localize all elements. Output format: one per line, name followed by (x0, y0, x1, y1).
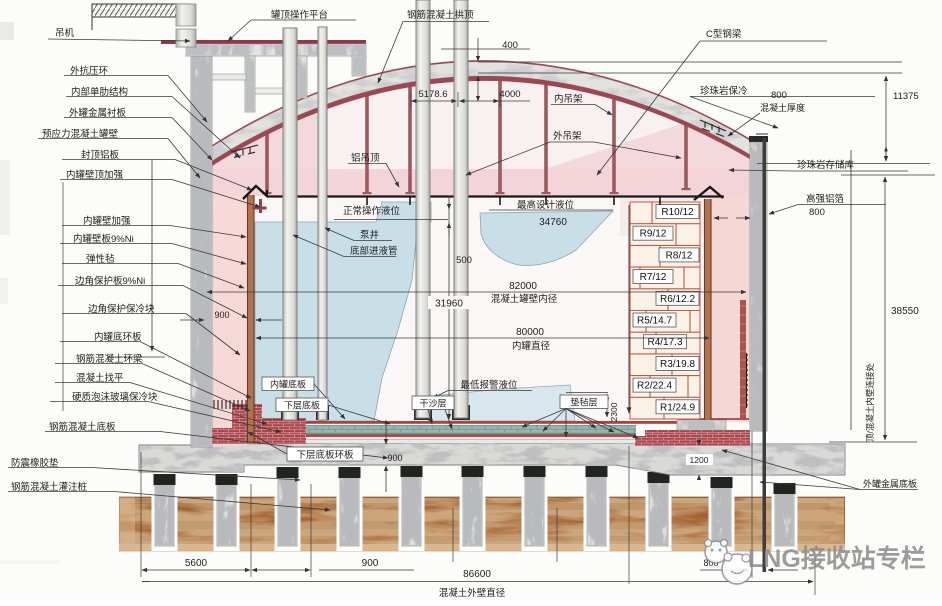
svg-text:82000: 82000 (509, 281, 537, 292)
svg-text:500: 500 (456, 255, 472, 266)
svg-text:R7/12: R7/12 (640, 272, 667, 283)
svg-text:干沙层: 干沙层 (419, 399, 446, 409)
svg-text:内吊架: 内吊架 (554, 93, 583, 105)
svg-text:内罐直径: 内罐直径 (512, 340, 551, 352)
svg-text:C型钢梁: C型钢梁 (706, 28, 742, 40)
svg-text:混凝土厚度: 混凝土厚度 (760, 102, 805, 113)
svg-text:1200: 1200 (690, 455, 709, 465)
svg-text:R6/12.2: R6/12.2 (660, 294, 695, 305)
svg-text:底部进液管: 底部进液管 (350, 245, 398, 257)
svg-text:R5/14.7: R5/14.7 (637, 316, 672, 327)
svg-text:4000: 4000 (499, 89, 520, 100)
svg-text:800: 800 (771, 90, 787, 101)
svg-text:900: 900 (387, 453, 402, 463)
svg-text:垫毡层: 垫毡层 (570, 397, 597, 408)
svg-text:珍珠岩存储库: 珍珠岩存储库 (797, 159, 855, 171)
svg-text:吊机: 吊机 (55, 27, 75, 39)
svg-text:31960: 31960 (435, 299, 463, 310)
svg-text:5600: 5600 (185, 558, 208, 569)
svg-text:内罐底板: 内罐底板 (270, 379, 306, 390)
svg-text:R1/24.9: R1/24.9 (660, 402, 695, 413)
svg-text:钢筋混凝土拱顶: 钢筋混凝土拱顶 (407, 9, 474, 21)
svg-text:LNG接收站专栏: LNG接收站专栏 (748, 544, 926, 573)
svg-text:混凝土外壁直径: 混凝土外壁直径 (439, 587, 506, 599)
svg-text:混凝土罐壁内径: 混凝土罐壁内径 (491, 293, 558, 305)
svg-text:38550: 38550 (891, 306, 919, 317)
svg-text:珍珠岩保冷: 珍珠岩保冷 (700, 85, 748, 97)
svg-text:最低报警液位: 最低报警液位 (460, 379, 518, 391)
svg-text:80000: 80000 (516, 327, 544, 338)
svg-text:R3/19.8: R3/19.8 (660, 359, 695, 370)
svg-text:泵井: 泵井 (360, 229, 379, 241)
svg-text:下层底板: 下层底板 (284, 400, 320, 411)
svg-text:R10/12: R10/12 (661, 207, 694, 218)
svg-text:外吊架: 外吊架 (553, 130, 582, 142)
svg-text:下层底板环板: 下层底板环板 (296, 449, 354, 461)
svg-text:5178.6: 5178.6 (418, 89, 447, 100)
svg-text:高强铝箔: 高强铝箔 (806, 193, 844, 205)
svg-text:R4/17.3: R4/17.3 (647, 337, 682, 348)
svg-text:R8/12: R8/12 (666, 250, 693, 261)
svg-text:最高设计液位: 最高设计液位 (517, 199, 575, 211)
svg-text:正常操作液位: 正常操作液位 (343, 205, 401, 217)
svg-text:2300: 2300 (609, 402, 619, 421)
svg-text:34760: 34760 (539, 217, 567, 228)
svg-text:R9/12: R9/12 (640, 229, 667, 240)
svg-text:罐顶操作平台: 罐顶操作平台 (271, 9, 328, 21)
svg-text:外罐金属底板: 外罐金属底板 (863, 478, 917, 489)
svg-text:铝吊顶: 铝吊顶 (351, 152, 380, 164)
svg-text:86600: 86600 (463, 569, 491, 580)
svg-text:900: 900 (214, 310, 229, 320)
svg-text:顶/混凝土内壁连接处: 顶/混凝土内壁连接处 (865, 363, 875, 442)
svg-text:11375: 11375 (893, 91, 919, 102)
svg-text:R2/22.4: R2/22.4 (637, 381, 672, 392)
svg-text:800: 800 (809, 207, 825, 218)
svg-text:900: 900 (362, 558, 379, 569)
